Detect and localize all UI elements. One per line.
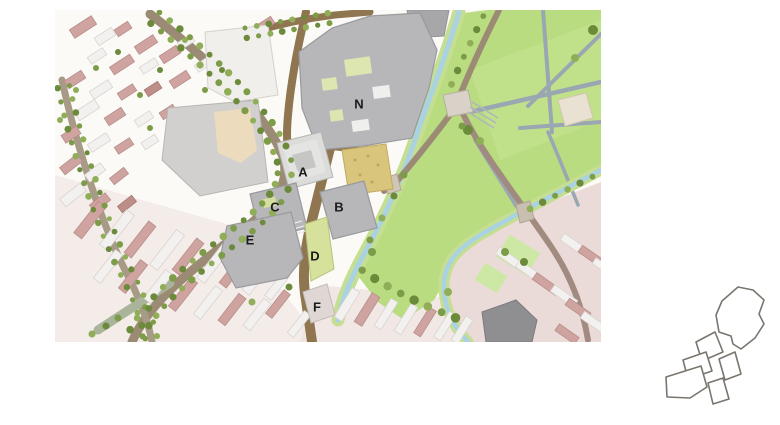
tree-icon [233, 98, 239, 104]
roof-garden [344, 56, 372, 76]
tree-icon [128, 266, 134, 272]
tree-icon [91, 207, 97, 213]
tree-icon [67, 83, 72, 88]
tree-icon [210, 241, 216, 247]
tree-icon [179, 285, 185, 291]
tree-icon [283, 143, 290, 150]
tree-icon [229, 244, 235, 250]
tree-icon [241, 217, 247, 223]
tree-icon [154, 333, 160, 339]
tree-icon [179, 266, 186, 273]
block-label-C: C [270, 200, 280, 215]
tree-icon [303, 24, 309, 30]
block-label-E: E [246, 233, 255, 248]
tree-icon [199, 249, 206, 256]
tree-icon [501, 248, 509, 256]
tree-icon [170, 294, 177, 301]
tree-icon [85, 193, 92, 200]
tree-icon [270, 149, 276, 155]
tree-icon [564, 186, 571, 193]
tree-icon [367, 237, 374, 244]
tree-icon [207, 52, 213, 58]
tree-icon [190, 258, 196, 264]
tree-icon [291, 27, 297, 33]
tree-icon [65, 126, 72, 133]
tree-icon [590, 174, 596, 180]
tree-icon [135, 280, 140, 285]
tree-icon [527, 205, 534, 212]
tree-icon [153, 312, 160, 319]
tree-icon [249, 299, 256, 306]
tree-icon [81, 180, 87, 186]
tree-icon [539, 199, 546, 206]
tree-icon [461, 54, 467, 60]
key-shape-E [666, 366, 707, 398]
tree-icon [55, 85, 61, 91]
tree-icon [58, 99, 63, 104]
tree-icon [138, 322, 145, 329]
tree-icon [160, 284, 166, 290]
tree-icon [73, 87, 79, 93]
tree-icon [151, 319, 156, 324]
tree-icon [70, 96, 76, 102]
tree-icon [85, 150, 90, 155]
tree-icon [161, 303, 167, 309]
roof-garden [321, 77, 338, 91]
tree-icon [198, 268, 205, 275]
tree-icon [244, 35, 250, 41]
tree-icon [261, 109, 268, 116]
tree-icon [448, 81, 455, 88]
tree-icon [188, 276, 195, 283]
tree-icon [101, 234, 106, 239]
tree-icon [118, 272, 124, 278]
tree-icon [224, 88, 232, 96]
tree-icon [235, 79, 241, 85]
tree-icon [141, 292, 147, 298]
tree-icon [552, 193, 558, 199]
tree-icon [368, 248, 376, 256]
tree-icon [476, 137, 484, 145]
tree-icon [88, 163, 94, 169]
tree-icon [243, 88, 250, 95]
tree-icon [324, 10, 331, 17]
tree-icon [253, 99, 259, 105]
tree-icon [438, 308, 446, 316]
tree-icon [288, 157, 294, 163]
tree-icon [142, 336, 148, 342]
tree-icon [102, 203, 108, 209]
tree-icon [147, 20, 154, 27]
tree-icon [93, 65, 99, 71]
tree-icon [115, 315, 122, 322]
tree-icon [315, 23, 320, 28]
tree-icon [459, 123, 466, 130]
tree-icon [267, 31, 273, 37]
tree-icon [243, 26, 248, 31]
roof-light [372, 85, 391, 99]
tree-icon [359, 267, 366, 274]
tree-icon [272, 181, 279, 188]
tree-icon [473, 26, 480, 33]
tree-icon [117, 241, 124, 248]
tree-icon [150, 293, 157, 300]
tree-icon [137, 92, 143, 98]
tree-icon [77, 167, 82, 172]
key-shape-N [716, 287, 764, 349]
tree-icon [241, 107, 248, 114]
tree-icon [197, 61, 204, 68]
tree-icon [135, 310, 141, 316]
tree-icon [571, 54, 579, 62]
tree-icon [302, 15, 307, 20]
tree-icon [379, 215, 386, 222]
tree-icon [158, 29, 164, 35]
tree-icon [409, 295, 418, 304]
tree-icon [169, 274, 177, 282]
tree-icon [112, 229, 118, 235]
tree-icon [177, 44, 185, 52]
tree-icon [157, 67, 163, 73]
tree-icon [576, 180, 583, 187]
tree-icon [288, 172, 295, 179]
tree-icon [166, 17, 173, 24]
tree-icon [176, 25, 183, 32]
tree-icon [265, 21, 272, 28]
tree-icon [61, 113, 67, 119]
tree-icon [451, 313, 461, 323]
roof-garden [329, 109, 343, 122]
tree-icon [123, 254, 128, 259]
tree-icon [256, 33, 261, 38]
tree-icon [107, 216, 112, 221]
tree-icon [130, 297, 135, 302]
tree-icon [397, 290, 405, 298]
roof-light [351, 119, 369, 132]
key-shape-B [719, 352, 741, 380]
tree-icon [313, 12, 319, 18]
tree-icon [250, 209, 257, 216]
site-plan-map: NABCDEF [0, 0, 780, 425]
tree-icon [276, 131, 282, 137]
tree-icon [424, 302, 433, 311]
tree-icon [146, 305, 153, 312]
tree-icon [467, 40, 474, 47]
key-shape-D [708, 378, 729, 404]
key-plan-inset [666, 287, 764, 404]
tree-icon [115, 49, 121, 55]
tree-icon [168, 36, 175, 43]
tree-icon [73, 109, 80, 116]
tree-icon [69, 140, 75, 146]
tree-icon [480, 13, 486, 19]
tree-icon [209, 261, 215, 267]
tree-icon [278, 19, 283, 24]
tree-icon [401, 172, 408, 179]
figure-canvas: NABCDEF [0, 0, 780, 425]
tree-icon [218, 252, 225, 259]
tree-icon [444, 288, 452, 296]
tree-icon [157, 10, 163, 16]
tree-icon [124, 284, 130, 290]
tree-icon [520, 258, 528, 266]
tree-icon [250, 118, 256, 124]
tree-icon [266, 190, 274, 198]
tree-icon [89, 331, 96, 338]
tree-icon [196, 42, 203, 49]
tree-icon [370, 274, 379, 283]
tree-icon [187, 53, 193, 59]
block-label-F: F [313, 300, 321, 315]
tree-icon [454, 67, 461, 74]
block-label-D: D [310, 249, 319, 264]
tree-icon [106, 246, 112, 252]
tree-icon [80, 136, 86, 142]
tree-icon [257, 127, 264, 134]
tree-icon [279, 28, 286, 35]
tree-icon [284, 186, 291, 193]
tree-icon [225, 69, 232, 76]
tree-icon [383, 282, 391, 290]
tree-icon [264, 137, 272, 145]
tree-icon [77, 123, 82, 128]
tree-icon [92, 176, 99, 183]
tree-icon [274, 159, 281, 166]
tree-icon [95, 220, 101, 226]
tree-icon [220, 233, 228, 241]
tree-icon [215, 79, 222, 86]
tree-icon [182, 37, 188, 43]
tree-icon [219, 67, 225, 73]
tree-icon [97, 190, 102, 195]
tree-icon [126, 326, 134, 334]
tree-icon [259, 200, 265, 206]
tree-icon [202, 87, 208, 93]
tree-icon [254, 23, 260, 29]
tree-icon [147, 125, 153, 131]
block-label-B: B [334, 200, 343, 215]
tree-icon [216, 60, 223, 67]
tree-icon [391, 193, 398, 200]
tree-icon [207, 71, 213, 77]
tree-icon [289, 17, 295, 23]
tree-icon [260, 220, 266, 226]
map-area: NABCDEF [55, 10, 616, 345]
tree-icon [327, 20, 333, 26]
tree-icon [134, 315, 141, 322]
tree-icon [588, 25, 598, 35]
tree-icon [230, 225, 237, 232]
tree-icon [286, 284, 293, 291]
tree-icon [73, 153, 79, 159]
tree-icon [268, 119, 275, 126]
tree-icon [275, 170, 281, 176]
tree-icon [111, 259, 118, 266]
tree-icon [103, 323, 110, 330]
block-label-A: A [298, 165, 308, 180]
block-label-N: N [354, 97, 363, 112]
tree-icon [57, 117, 63, 123]
